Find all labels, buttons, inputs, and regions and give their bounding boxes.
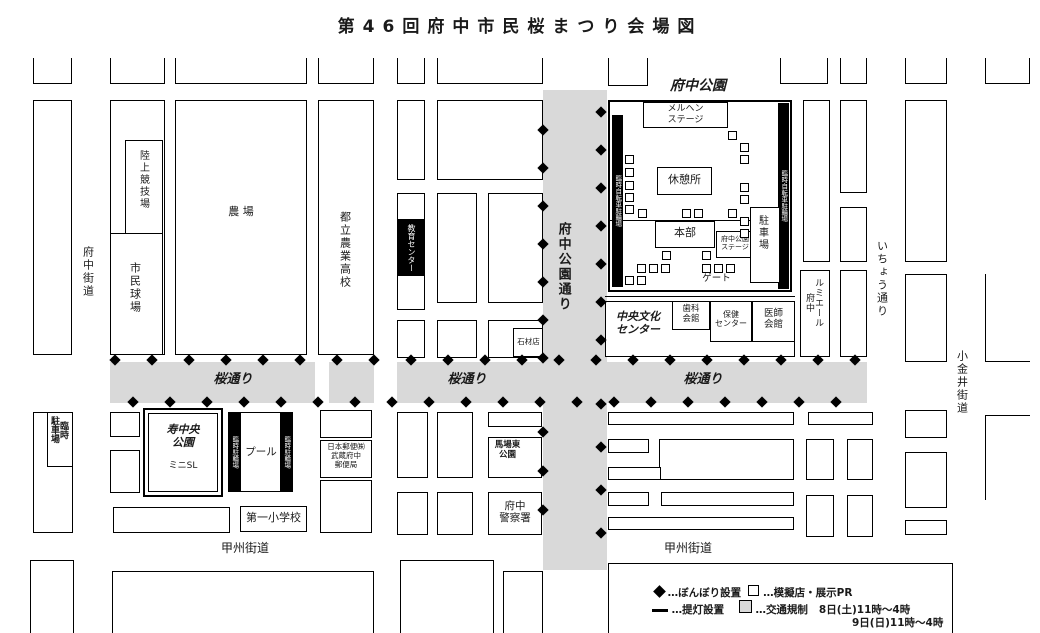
place-label-kotobuki-park: 寿中央 公園 xyxy=(150,424,216,450)
city-block xyxy=(840,270,867,357)
place-label-citizens-ballpark: 市民球場 xyxy=(129,262,141,314)
city-block-corner xyxy=(985,274,1030,362)
stall-marker xyxy=(625,276,634,285)
map-title: 第46回府中市民桜まつり会場図 xyxy=(0,12,1040,37)
stall-marker xyxy=(625,193,634,202)
city-block xyxy=(803,100,830,262)
city-block xyxy=(905,58,947,84)
city-block xyxy=(659,439,794,480)
stall-marker xyxy=(661,264,670,273)
city-block xyxy=(608,439,649,453)
place-label-mini-sl: ミニSL xyxy=(150,461,216,472)
stall-marker xyxy=(702,264,711,273)
city-block xyxy=(808,412,873,425)
stall-marker xyxy=(726,264,735,273)
city-block xyxy=(112,571,374,633)
city-block xyxy=(437,412,473,478)
city-block xyxy=(608,58,648,86)
stall-marker xyxy=(740,229,749,238)
city-block xyxy=(437,320,477,358)
city-block xyxy=(318,58,374,84)
place-label-headquarters: 本部 xyxy=(656,227,714,240)
traffic-regulation-icon xyxy=(739,600,752,613)
place-label-dental-hall: 歯科 会館 xyxy=(673,304,709,324)
road-label-koshu-kaido-left: 甲州街道 xyxy=(205,541,285,555)
stall-marker xyxy=(637,264,646,273)
temp-bicycle-parking-right-label: 臨時自転車駐輪場 xyxy=(780,170,787,222)
road-label-koshu-kaido-right: 甲州街道 xyxy=(648,541,728,555)
place-label-police-station: 府中 警察署 xyxy=(489,500,541,525)
place-label-central-culture-center: 中央文化 センター xyxy=(607,311,669,337)
city-block xyxy=(437,193,477,303)
stall-marker xyxy=(625,168,634,177)
city-block xyxy=(437,100,543,180)
city-block xyxy=(608,412,794,425)
bonbori-marker xyxy=(386,396,397,407)
city-block-corner xyxy=(985,415,1030,500)
city-block xyxy=(905,100,947,262)
street-line xyxy=(605,296,795,297)
road-label-icho-dori: いちょう通り xyxy=(876,240,888,318)
stall-marker xyxy=(625,155,634,164)
temp-bicycle-parking-left: 臨時自転車駐輪場 xyxy=(612,115,623,287)
city-block xyxy=(847,495,873,537)
place-label-gate: ゲート xyxy=(694,273,739,284)
city-block xyxy=(905,274,947,362)
legend-row-1: …ぼんぼり設置 …模擬店・展示PR xyxy=(655,585,852,600)
city-block xyxy=(661,492,794,506)
stall-marker xyxy=(740,155,749,164)
city-block xyxy=(113,507,230,533)
city-block xyxy=(780,58,828,84)
city-block xyxy=(397,412,428,478)
city-block xyxy=(840,207,867,262)
place-label-farm: 農 場 xyxy=(216,206,266,219)
city-block xyxy=(320,410,372,438)
place-label-education-center: 教育センター xyxy=(407,224,415,272)
city-block xyxy=(397,100,425,180)
place-label-health-center: 保健 センター xyxy=(711,310,751,329)
stall-marker xyxy=(637,276,646,285)
city-block xyxy=(397,58,425,84)
bonbori-diamond-icon xyxy=(653,585,666,598)
stall-marker xyxy=(740,183,749,192)
city-block xyxy=(437,58,543,84)
city-block xyxy=(608,492,649,506)
stall-marker xyxy=(625,205,634,214)
city-block xyxy=(488,412,542,427)
city-block xyxy=(110,58,165,84)
temp-bike-parking-strip-2: 臨時駐輪場 xyxy=(280,412,293,492)
city-block xyxy=(840,58,867,84)
place-label-rest-area: 休憩所 xyxy=(658,174,711,187)
city-block xyxy=(175,58,307,84)
city-block xyxy=(110,412,140,437)
city-block xyxy=(397,492,428,535)
legend-kisei-time2: 9日(日)11時～4時 xyxy=(852,617,943,629)
city-block xyxy=(397,320,425,358)
city-block xyxy=(608,467,661,480)
chochin-line-icon xyxy=(652,609,668,612)
place-label-agricultural-hs: 都立農業高校 xyxy=(339,211,351,289)
city-block xyxy=(840,100,867,193)
legend-bonbori-label: …ぼんぼり設置 xyxy=(668,587,742,599)
city-block xyxy=(503,571,543,633)
stall-marker xyxy=(649,264,658,273)
city-block xyxy=(806,439,834,480)
stall-marker xyxy=(740,143,749,152)
place-label-post-office: 日本郵便㈱ 武蔵府中 郵便局 xyxy=(321,443,371,470)
stall-square-icon xyxy=(748,585,759,596)
city-block xyxy=(30,560,74,633)
road-shading-sakura-dori xyxy=(329,362,374,403)
stall-marker xyxy=(714,264,723,273)
stall-marker xyxy=(638,209,647,218)
temp-bicycle-parking-left-label: 臨時自転車駐輪場 xyxy=(614,175,621,227)
stall-marker xyxy=(694,209,703,218)
city-block xyxy=(33,100,72,355)
city-block xyxy=(320,480,372,533)
temp-bike-parking-strip-1: 臨時駐輪場 xyxy=(228,412,241,492)
city-block xyxy=(33,58,72,84)
city-block xyxy=(437,492,473,535)
place-label-fuchu-park: 府中公園 xyxy=(648,78,748,95)
place-label-temp-car-parking: 臨時 駐車場 xyxy=(49,416,67,443)
place-label-pool: プール xyxy=(243,446,279,458)
road-label-fuchu-koen-dori: 府中公園通り xyxy=(556,222,570,312)
place-label-lumiere-fuchu: ルミエール 府中 xyxy=(804,278,822,328)
temp-bike-parking-strip-1-label: 臨時駐輪場 xyxy=(231,436,238,469)
city-block xyxy=(905,452,947,508)
place-label-athletics-stadium: 陸上競技場 xyxy=(137,150,148,210)
temp-bike-parking-strip-2-label: 臨時駐輪場 xyxy=(283,436,290,469)
city-block xyxy=(905,410,947,438)
city-block xyxy=(985,58,1030,84)
road-label-sakura-dori-left: 桜通り xyxy=(198,372,268,387)
legend-mogiten-label: …模擬店・展示PR xyxy=(763,587,852,599)
city-block xyxy=(110,450,140,493)
road-label-fuchu-kaido: 府中街道 xyxy=(82,246,94,298)
city-block xyxy=(400,560,494,633)
city-block xyxy=(847,439,873,480)
stall-marker xyxy=(728,209,737,218)
city-block xyxy=(608,517,794,530)
stall-marker xyxy=(702,251,711,260)
stall-marker xyxy=(625,181,634,190)
road-label-koganei-kaido: 小金井街道 xyxy=(956,350,968,415)
stall-marker xyxy=(740,217,749,226)
festival-venue-map: 第46回府中市民桜まつり会場図 臨時自転車駐輪場 臨時自転車駐輪場 xyxy=(0,0,1040,633)
place-label-elementary-school: 第一小学校 xyxy=(241,512,306,525)
place-label-medical-hall: 医師 会館 xyxy=(753,308,794,330)
city-block xyxy=(905,520,947,535)
city-block xyxy=(488,193,543,303)
legend-kisei-label: …交通規制 xyxy=(755,604,808,616)
stall-marker xyxy=(662,251,671,260)
place-label-stone-shop: 石材店 xyxy=(514,338,543,347)
place-label-marchen-stage: メルヘン ステージ xyxy=(644,104,727,125)
road-label-sakura-dori-mid: 桜通り xyxy=(432,372,502,387)
legend-chochin-label: …提灯設置 xyxy=(672,604,725,616)
farm-block xyxy=(175,100,307,355)
road-label-sakura-dori-right: 桜通り xyxy=(668,372,738,387)
education-center-strip: 教育センター xyxy=(398,219,424,276)
place-label-parking-lot: 駐車場 xyxy=(756,215,767,251)
road-shading-fuchu-koen-dori xyxy=(543,90,607,570)
stall-marker xyxy=(728,131,737,140)
city-block xyxy=(806,495,834,537)
stall-marker xyxy=(682,209,691,218)
stall-marker xyxy=(740,195,749,204)
legend-row-3: 9日(日)11時～4時 xyxy=(852,615,943,630)
place-label-baba-higashi-park: 馬場東 公園 xyxy=(490,440,525,460)
